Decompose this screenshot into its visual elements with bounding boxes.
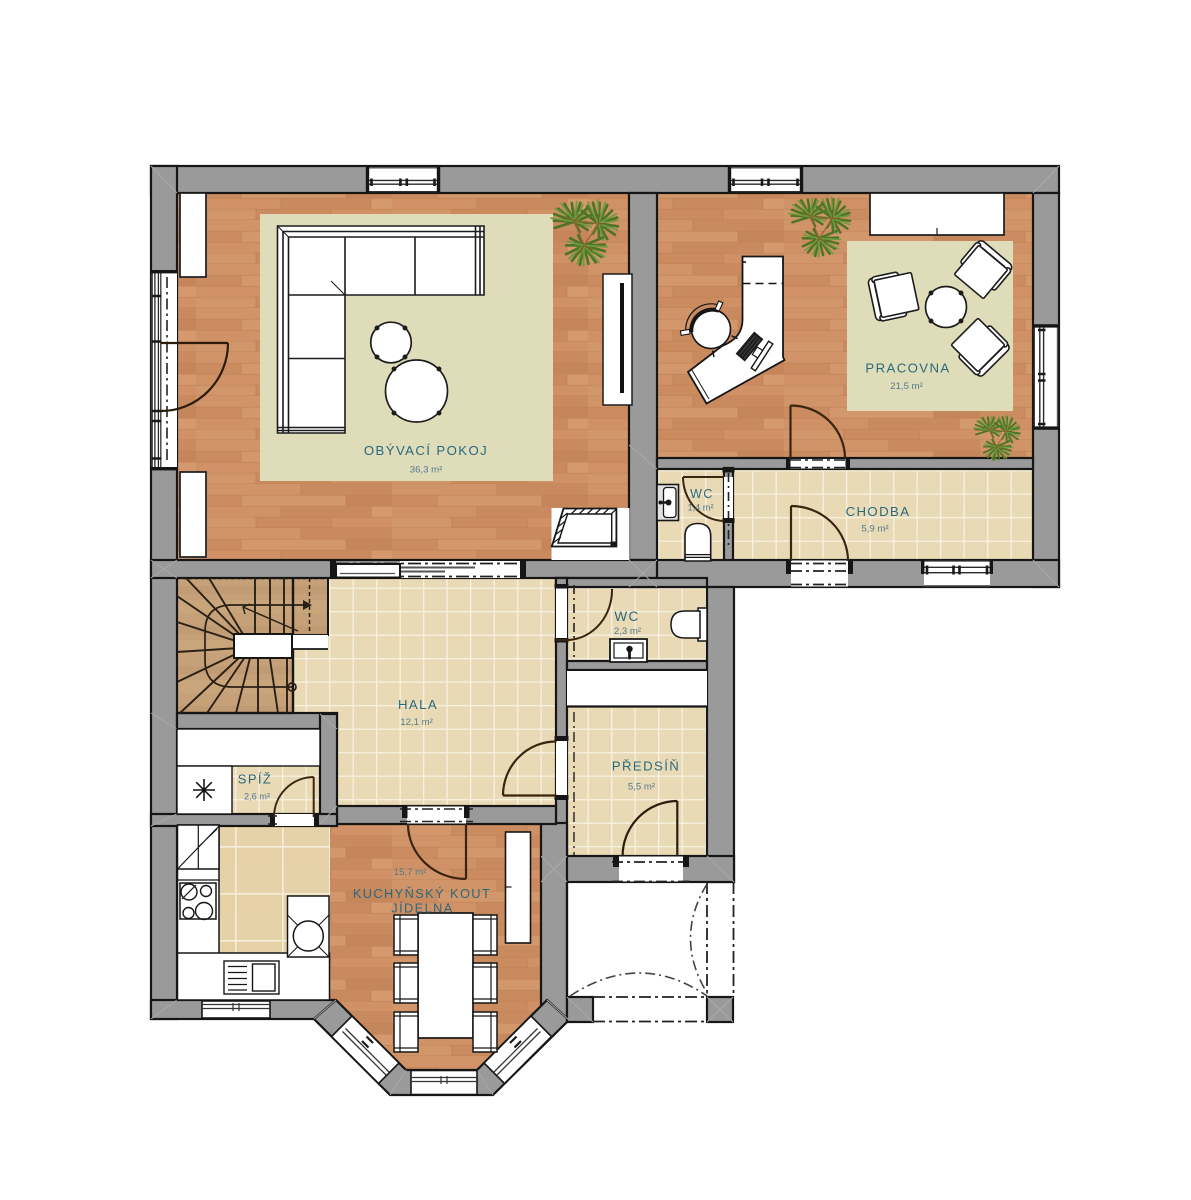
svg-text:36,3 m²: 36,3 m² [410, 465, 443, 476]
svg-text:OBÝVACÍ POKOJ: OBÝVACÍ POKOJ [364, 443, 488, 458]
svg-text:JÍDELNA: JÍDELNA [391, 901, 453, 916]
svg-text:PRACOVNA: PRACOVNA [865, 361, 950, 376]
svg-text:5,5 m²: 5,5 m² [628, 782, 656, 793]
svg-text:5,9 m²: 5,9 m² [861, 524, 889, 535]
svg-text:WC: WC [614, 609, 639, 624]
svg-text:12,1 m²: 12,1 m² [400, 717, 433, 728]
svg-text:21,5 m²: 21,5 m² [890, 381, 923, 392]
svg-text:1,4 m²: 1,4 m² [687, 503, 713, 513]
svg-text:PŘEDSÍŇ: PŘEDSÍŇ [612, 759, 680, 774]
svg-text:WC: WC [690, 487, 714, 501]
svg-text:HALA: HALA [398, 697, 438, 712]
svg-text:2,3 m²: 2,3 m² [614, 626, 642, 637]
svg-text:SPÍŽ: SPÍŽ [238, 772, 273, 787]
svg-text:2,6 m²: 2,6 m² [244, 792, 270, 802]
svg-text:KUCHYŇSKÝ KOUT: KUCHYŇSKÝ KOUT [353, 886, 491, 901]
svg-text:CHODBA: CHODBA [846, 504, 911, 519]
svg-text:15,7 m²: 15,7 m² [394, 867, 427, 878]
